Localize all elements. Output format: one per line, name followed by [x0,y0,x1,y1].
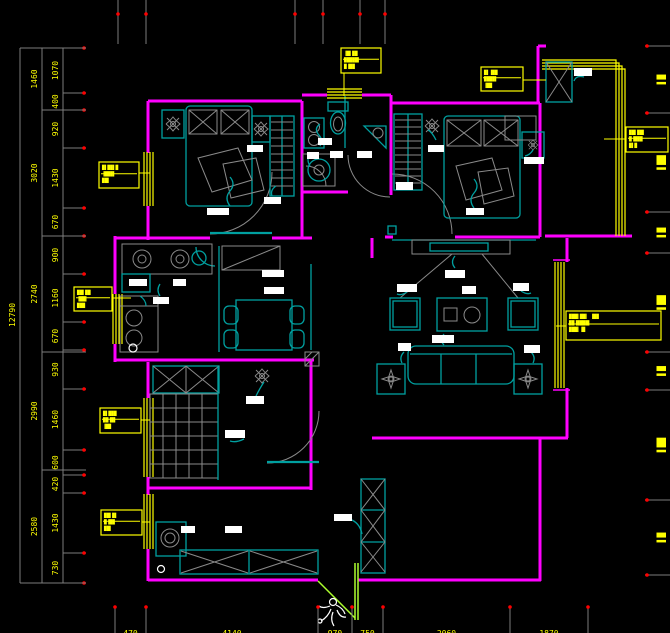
svg-text:1430: 1430 [51,168,60,187]
svg-text:▌█: ▌█ [656,533,666,544]
svg-text:920: 920 [51,122,60,137]
svg-text:▐███▌: ▐███▌ [102,171,116,178]
study-furniture[interactable] [150,366,269,480]
dining-furniture[interactable] [219,246,319,366]
text-tag [307,152,319,159]
floor-plan-canvas[interactable]: 1070400920143067090011606709301460600420… [0,0,670,633]
svg-text:██▌: ██▌ [101,177,110,184]
text-tag [153,297,169,304]
text-tag [357,151,372,158]
svg-text:1870: 1870 [539,629,558,633]
svg-text:█▌▐██: █▌▐██ [483,69,498,76]
text-tag [574,68,592,76]
text-tag [225,430,245,438]
callout-annotation[interactable]: ███▌██▌ ▐████▐████▌███▌▐█ [556,311,661,340]
svg-text:2740: 2740 [30,284,39,303]
text-tag [129,279,147,286]
svg-text:730: 730 [51,561,60,576]
balcony-shaft[interactable] [546,62,572,102]
svg-text:▌█: ▌█ [656,75,666,86]
text-tag [396,182,413,190]
callout-annotation[interactable]: █▌█████▐█▌▐██ [100,408,150,433]
svg-text:██▐████▌: ██▐████▌ [568,320,591,327]
text-tag [207,208,229,215]
text-tag [181,526,195,533]
svg-text:██▌█▌: ██▌█▌ [103,512,118,519]
text-tag [462,286,476,294]
text-tag [246,396,264,404]
svg-text:930: 930 [51,362,60,377]
svg-text:▐██: ▐██ [484,82,492,89]
text-tag [173,279,186,286]
callout-annotation[interactable]: █▌██▌█▐███▌██▌ [99,162,150,188]
svg-text:900: 900 [51,248,60,263]
svg-text:670: 670 [51,329,60,344]
bedroom-topleft-furniture[interactable] [162,106,294,206]
svg-text:▐██▌: ▐██▌ [77,296,88,303]
text-tag [262,270,284,277]
cad-viewport: 1070400920143067090011606709301460600420… [0,0,670,633]
svg-text:███▌▐█: ███▌▐█ [568,326,586,333]
callout-annotation[interactable]: █▌▐██████▌▐██ [481,67,546,91]
text-tag [428,145,444,152]
svg-text:███▌██▌ ▐██: ███▌██▌ ▐██ [568,313,599,320]
svg-text:███: ███ [76,302,85,309]
entry-person-figure [318,599,346,627]
doors-layer[interactable] [196,155,452,463]
svg-text:420: 420 [51,477,60,492]
svg-text:470: 470 [123,629,138,633]
svg-text:█████▌: █████▌ [343,57,360,64]
svg-text:█▐██: █▐██ [343,63,355,70]
svg-text:1460: 1460 [51,410,60,429]
svg-text:970: 970 [328,629,343,633]
svg-text:400: 400 [51,94,60,109]
text-tag [524,345,540,353]
svg-text:750: 750 [360,629,375,633]
svg-text:2990: 2990 [30,401,39,420]
svg-text:1460: 1460 [30,69,39,88]
bedroom-topright-furniture[interactable] [394,114,544,218]
text-tag [334,514,352,521]
svg-text:1430: 1430 [51,513,60,532]
svg-text:█▌██▌█: █▌██▌█ [101,164,119,171]
svg-text:▐██: ▐██ [103,423,111,430]
text-tag [466,208,484,215]
svg-text:█▐███: █▐███ [628,136,643,143]
svg-text:1160: 1160 [51,288,60,307]
svg-text:1070: 1070 [51,61,60,80]
svg-text:3020: 3020 [30,163,39,182]
svg-text:600: 600 [51,455,60,470]
text-tag [225,526,242,533]
svg-text:12790: 12790 [8,303,17,327]
text-tag [247,145,263,152]
svg-text:▌██: ▌██ [656,438,666,454]
svg-text:▌█: ▌█ [656,366,666,377]
svg-text:4140: 4140 [222,629,241,633]
svg-text:2580: 2580 [30,517,39,536]
svg-text:▐█▌██: ▐█▌██ [344,50,358,57]
svg-text:█▐██: █▐██ [103,519,115,526]
text-tag [513,283,529,291]
text-tag [330,151,343,158]
text-tag [524,157,544,164]
text-tag [264,287,284,294]
svg-text:2060: 2060 [437,629,456,633]
svg-text:██▌: ██▌ [103,525,112,532]
svg-text:██▐█▌: ██▐█▌ [102,417,117,424]
svg-text:▌██: ▌██ [656,295,666,311]
living-room-furniture[interactable] [377,240,542,394]
svg-text:██▌██: ██▌██ [76,289,91,296]
svg-text:▌██: ▌██ [656,155,666,171]
svg-text:▌█: ▌█ [656,228,666,239]
text-tag [445,270,465,278]
svg-text:██▌██▌: ██▌██▌ [628,129,645,136]
text-tag [397,284,417,292]
svg-text:670: 670 [51,215,60,230]
text-tag [432,335,454,343]
svg-text:████▌: ████▌ [483,76,498,83]
callout-annotation[interactable]: ██▌█▌█▐████▌ [101,510,150,535]
text-tag [318,138,332,145]
text-tag [264,197,281,204]
text-tag [398,343,411,351]
svg-text:█▌███: █▌███ [102,410,117,417]
svg-text:█▌█: █▌█ [628,142,637,149]
callout-annotation[interactable]: ██▌██▌█▐████▌█ [604,127,668,152]
